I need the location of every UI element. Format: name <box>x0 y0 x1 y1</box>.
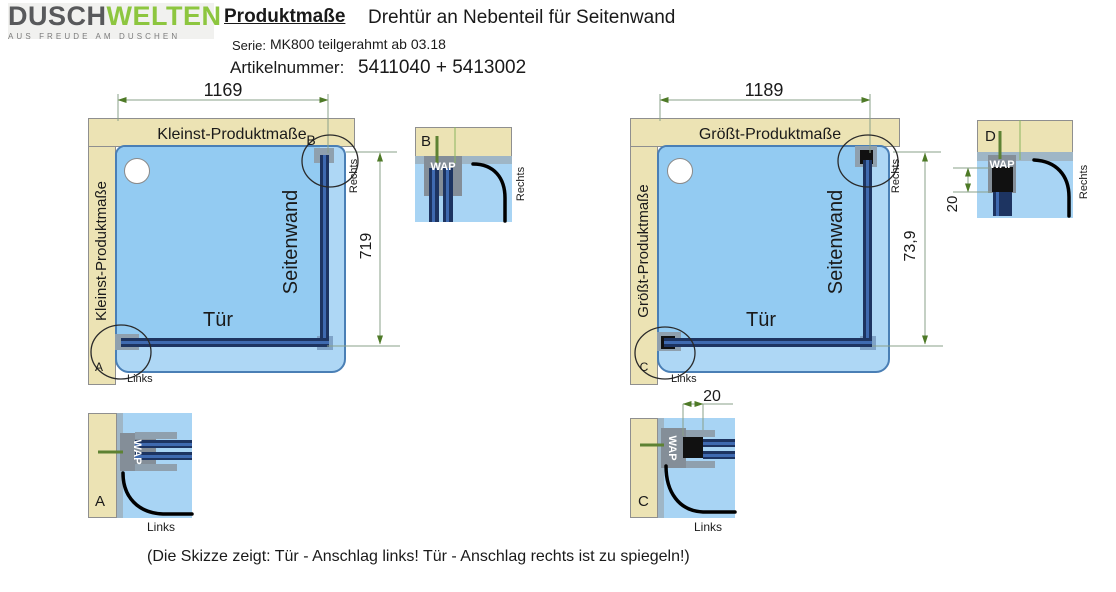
right-door-label: Tür <box>746 309 776 331</box>
detail-b-tray-corner <box>473 164 505 221</box>
left-width-dimension: 1169 <box>204 80 243 100</box>
detail-d-adjust-dimension: 20 <box>944 196 961 213</box>
detail-d-side-label: Rechts <box>1078 164 1090 199</box>
detail-d-letter: D <box>985 128 996 145</box>
diagram-overlay: 1169 Kleinst-Produktmaße Kleinst-Produkt… <box>0 0 1116 592</box>
right-hinge-side-label: Links <box>671 373 697 385</box>
right-marker-c-letter: C <box>640 360 649 374</box>
right-height-dimension: 73,9 <box>902 230 919 261</box>
sketch-note: (Die Skizze zeigt: Tür - Anschlag links!… <box>147 548 690 566</box>
left-panel-label: Seitenwand <box>280 190 302 295</box>
detail-c-letter: C <box>638 493 649 510</box>
right-wall-side-label: Rechts <box>890 158 902 193</box>
left-door-label: Tür <box>203 309 233 331</box>
wall-anchors <box>98 120 1020 452</box>
right-side-wall-label: Größt-Produktmaße <box>635 184 652 317</box>
detail-d-tray-corner <box>1034 160 1069 216</box>
detail-c-side-label: Links <box>694 520 722 534</box>
left-height-dimension: 719 <box>358 233 375 260</box>
right-width-dimension: 1189 <box>745 80 784 100</box>
detail-a-tray-corner <box>123 473 192 514</box>
detail-a-side-label: Links <box>147 520 175 534</box>
detail-b-side-label: Rechts <box>515 166 527 201</box>
left-hinge-side-label: Links <box>127 373 153 385</box>
product-dimensions-sheet: DUSCHWELTEN AUS FREUDE AM DUSCHEN Produk… <box>0 0 1116 592</box>
detail-d-wap-label: WAP <box>989 159 1014 171</box>
left-top-wall-label: Kleinst-Produktmaße <box>157 126 306 143</box>
detail-tray-corners <box>123 160 1069 514</box>
detail-a-letter: A <box>95 493 105 510</box>
detail-c-tray-corner <box>666 466 735 512</box>
left-side-wall-label: Kleinst-Produktmaße <box>93 181 110 321</box>
left-wall-side-label: Rechts <box>348 158 360 193</box>
left-marker-b-letter: B <box>306 132 315 148</box>
detail-c-wap-label: WAP <box>666 435 678 460</box>
right-top-wall-label: Größt-Produktmaße <box>699 126 841 143</box>
detail-b-letter: B <box>421 133 431 150</box>
detail-b-wap-label: WAP <box>430 161 455 173</box>
right-panel-label: Seitenwand <box>825 190 847 295</box>
left-marker-a-letter: A <box>95 360 103 374</box>
right-top-detail-circle <box>838 135 898 187</box>
detail-c-adjust-dimension: 20 <box>703 388 721 405</box>
detail-a-wap-label: WAP <box>131 439 143 464</box>
